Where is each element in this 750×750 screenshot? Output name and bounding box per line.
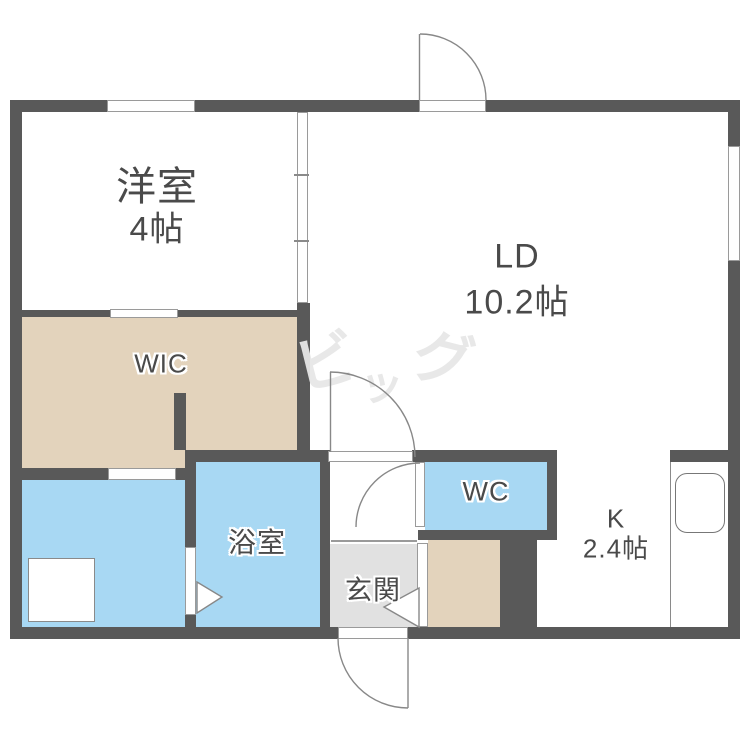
room-label-bathroom: 浴室 bbox=[228, 521, 286, 561]
bathroom-door-fold-triangle bbox=[197, 582, 222, 613]
room-label-genkan: 玄関 bbox=[345, 569, 401, 608]
door-swing-overlay bbox=[0, 0, 750, 750]
front-door-arc bbox=[338, 638, 408, 708]
ld-hall-door-arc bbox=[330, 372, 415, 457]
wc-door-arc bbox=[356, 463, 420, 527]
entrance-door-arc bbox=[420, 34, 486, 100]
room-size-kitchen: 2.4帖 bbox=[583, 529, 649, 566]
room-size-ld: 10.2帖 bbox=[464, 275, 569, 324]
room-label-ld: LD bbox=[494, 238, 539, 277]
room-label-wc: WC bbox=[463, 477, 510, 508]
floor-plan: ビ ッ グ 洋室 4帖 LD 10.2帖 WIC 浴室 WC 玄関 K 2.4帖 bbox=[0, 0, 750, 750]
room-size-yoshitsu: 4帖 bbox=[130, 202, 185, 251]
room-label-wic: WIC bbox=[134, 349, 188, 380]
